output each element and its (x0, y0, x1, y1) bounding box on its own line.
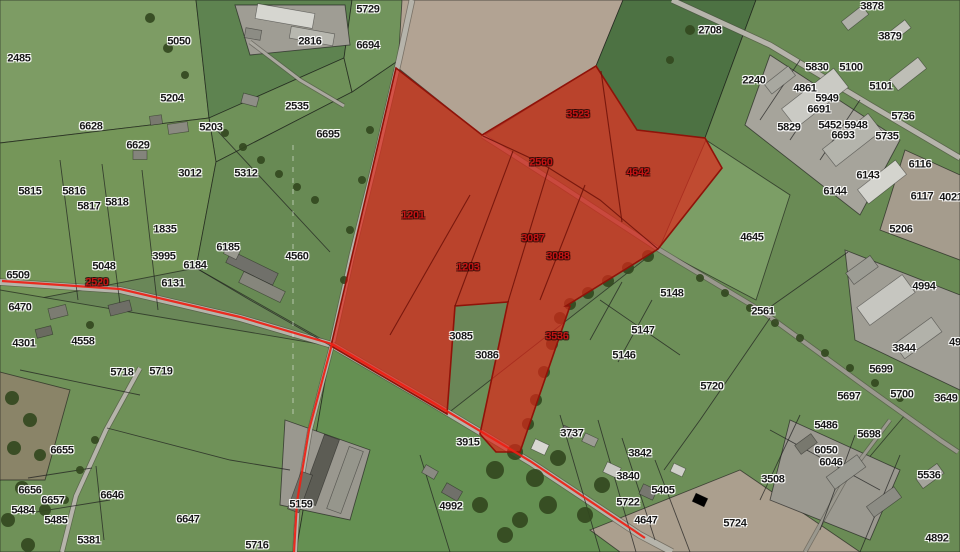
parcel-label-5722[interactable]: 5722 (616, 498, 639, 509)
parcel-label-6117[interactable]: 6117 (911, 192, 934, 203)
tree (526, 469, 544, 487)
tree (181, 71, 189, 79)
tree (239, 143, 247, 151)
tree (86, 321, 94, 329)
parcel-label-5146[interactable]: 5146 (612, 351, 635, 362)
tree (21, 538, 35, 552)
tree (275, 170, 283, 178)
parcel-label-2816[interactable]: 2816 (298, 37, 321, 48)
parcel-label-6185[interactable]: 6185 (216, 243, 239, 254)
parcel-label-5206[interactable]: 5206 (889, 225, 912, 236)
parcel-label-3879[interactable]: 3879 (878, 32, 901, 43)
parcel-label-6655[interactable]: 6655 (50, 446, 73, 457)
parcel-label-6628[interactable]: 6628 (79, 122, 102, 133)
parcel-label-6509[interactable]: 6509 (6, 271, 29, 282)
tree (91, 436, 99, 444)
parcel-label-4021[interactable]: 4021 (939, 193, 960, 204)
parcel-label-1201[interactable]: 1201 (401, 211, 424, 222)
tree (594, 477, 610, 493)
parcel-label-5830[interactable]: 5830 (805, 63, 828, 74)
parcel-label-5816[interactable]: 5816 (62, 187, 85, 198)
parcel-label-5700[interactable]: 5700 (890, 390, 913, 401)
parcel-label-6647[interactable]: 6647 (176, 515, 199, 526)
parcel-label-3995[interactable]: 3995 (152, 252, 175, 263)
tree (497, 527, 513, 543)
parcel-label-5204[interactable]: 5204 (160, 94, 183, 105)
tree (358, 176, 366, 184)
parcel-label-5699[interactable]: 5699 (869, 365, 892, 376)
parcel-label-4558[interactable]: 4558 (71, 337, 94, 348)
parcel-label-1203[interactable]: 1203 (456, 263, 479, 274)
parcel-label-2240[interactable]: 2240 (742, 76, 765, 87)
parcel-label-5147[interactable]: 5147 (631, 326, 654, 337)
parcel-label-2485[interactable]: 2485 (7, 54, 30, 65)
parcel-label-49[interactable]: 49 (949, 338, 960, 349)
parcel-label-4861[interactable]: 4861 (793, 84, 816, 95)
parcel-label-6657[interactable]: 6657 (41, 496, 64, 507)
tree (771, 319, 779, 327)
parcel-label-5050[interactable]: 5050 (167, 37, 190, 48)
parcel-label-2708[interactable]: 2708 (698, 26, 721, 37)
parcel-label-6046[interactable]: 6046 (819, 458, 842, 469)
tree (346, 226, 354, 234)
parcel-label-5829[interactable]: 5829 (777, 123, 800, 134)
parcel-label-6144[interactable]: 6144 (823, 187, 846, 198)
tree (685, 25, 695, 35)
parcel-label-6656[interactable]: 6656 (18, 486, 41, 497)
parcel-label-5100[interactable]: 5100 (839, 63, 862, 74)
parcel-label-5312[interactable]: 5312 (234, 169, 257, 180)
parcel-label-6646[interactable]: 6646 (100, 491, 123, 502)
parcel-label-5203[interactable]: 5203 (199, 123, 222, 134)
tree (486, 461, 504, 479)
tree (696, 274, 704, 282)
parcel-label-3878[interactable]: 3878 (860, 2, 883, 13)
parcel-label-5698[interactable]: 5698 (857, 430, 880, 441)
parcel-label-6629[interactable]: 6629 (126, 141, 149, 152)
tree (846, 364, 854, 372)
parcel-label-5486[interactable]: 5486 (814, 421, 837, 432)
tree (366, 126, 374, 134)
parcel-label-5719[interactable]: 5719 (149, 367, 172, 378)
parcel-label-4301[interactable]: 4301 (12, 339, 35, 350)
parcel-label-5729[interactable]: 5729 (356, 5, 379, 16)
parcel-label-3012[interactable]: 3012 (178, 169, 201, 180)
parcel-label-5405[interactable]: 5405 (651, 486, 674, 497)
parcel-label-1835[interactable]: 1835 (153, 225, 176, 236)
parcel-label-5697[interactable]: 5697 (837, 392, 860, 403)
tree (257, 156, 265, 164)
parcel-label-5048[interactable]: 5048 (92, 262, 115, 273)
parcel-label-6695[interactable]: 6695 (316, 130, 339, 141)
building (133, 151, 147, 160)
tree (721, 289, 729, 297)
parcel-label-6131[interactable]: 6131 (161, 279, 184, 290)
parcel-label-4992[interactable]: 4992 (439, 502, 462, 513)
tree (577, 507, 593, 523)
map-viewport[interactable]: 2485505052046628520357292816669425356695… (0, 0, 960, 552)
parcel-label-5381[interactable]: 5381 (77, 536, 100, 547)
parcel-label-5536[interactable]: 5536 (917, 471, 940, 482)
parcel-label-5720[interactable]: 5720 (700, 382, 723, 393)
tree (76, 466, 84, 474)
parcel-label-3737[interactable]: 3737 (560, 429, 583, 440)
tree (539, 496, 557, 514)
tree (472, 497, 488, 513)
parcel-label-3086[interactable]: 3086 (475, 351, 498, 362)
parcel-label-3085[interactable]: 3085 (449, 332, 472, 343)
parcel-label-4560[interactable]: 4560 (285, 252, 308, 263)
parcel-label-3844[interactable]: 3844 (892, 344, 915, 355)
parcel-label-3088[interactable]: 3088 (546, 252, 569, 263)
parcel-label-5735[interactable]: 5735 (875, 132, 898, 143)
tree (871, 379, 879, 387)
parcel-label-6143[interactable]: 6143 (856, 171, 879, 182)
parcel-label-5718[interactable]: 5718 (110, 368, 133, 379)
parcel-label-2520[interactable]: 2520 (85, 278, 108, 289)
parcel-label-5148[interactable]: 5148 (660, 289, 683, 300)
parcel-label-4647[interactable]: 4647 (634, 516, 657, 527)
parcel-label-4645[interactable]: 4645 (740, 233, 763, 244)
tree (550, 450, 566, 466)
parcel-label-5485[interactable]: 5485 (44, 516, 67, 527)
parcel-label-5101[interactable]: 5101 (869, 82, 892, 93)
parcel-label-5818[interactable]: 5818 (105, 198, 128, 209)
parcel-label-6693[interactable]: 6693 (831, 131, 854, 142)
tree (7, 441, 21, 455)
parcel-label-3523[interactable]: 3523 (566, 110, 589, 121)
tree (311, 196, 319, 204)
parcel-label-3536[interactable]: 3536 (545, 332, 568, 343)
tree (796, 334, 804, 342)
parcel-label-6691[interactable]: 6691 (807, 105, 830, 116)
parcel-label-6470[interactable]: 6470 (8, 303, 31, 314)
parcel-label-3649[interactable]: 3649 (934, 394, 957, 405)
tree (23, 413, 37, 427)
parcel-label-5159[interactable]: 5159 (289, 500, 312, 511)
parcel-label-6184[interactable]: 6184 (183, 261, 206, 272)
parcel-label-6050[interactable]: 6050 (814, 446, 837, 457)
tree (5, 391, 19, 405)
parcel-label-6694[interactable]: 6694 (356, 41, 379, 52)
parcel-label-2535[interactable]: 2535 (285, 102, 308, 113)
parcel-label-2560[interactable]: 2560 (529, 158, 552, 169)
building (149, 115, 162, 126)
parcel-label-3087[interactable]: 3087 (521, 234, 544, 245)
parcel-label-5817[interactable]: 5817 (77, 202, 100, 213)
parcel-label-3915[interactable]: 3915 (456, 438, 479, 449)
parcel-label-3508[interactable]: 3508 (761, 475, 784, 486)
parcel-label-3842[interactable]: 3842 (628, 449, 651, 460)
parcel-label-5736[interactable]: 5736 (891, 112, 914, 123)
parcel-label-5716[interactable]: 5716 (245, 541, 268, 552)
parcel-label-3840[interactable]: 3840 (616, 472, 639, 483)
parcel-label-2561[interactable]: 2561 (751, 307, 774, 318)
parcel-label-5484[interactable]: 5484 (11, 506, 34, 517)
parcel-label-5724[interactable]: 5724 (723, 519, 746, 530)
parcel-label-5815[interactable]: 5815 (18, 187, 41, 198)
parcel-label-4892[interactable]: 4892 (925, 534, 948, 545)
parcel-label-4994[interactable]: 4994 (912, 282, 935, 293)
tree (821, 349, 829, 357)
tree (293, 183, 301, 191)
tree (666, 56, 674, 64)
tree (512, 512, 528, 528)
tree (145, 13, 155, 23)
parcel-label-4642[interactable]: 4642 (626, 168, 649, 179)
parcel-label-6116[interactable]: 6116 (909, 160, 932, 171)
tree (34, 449, 46, 461)
